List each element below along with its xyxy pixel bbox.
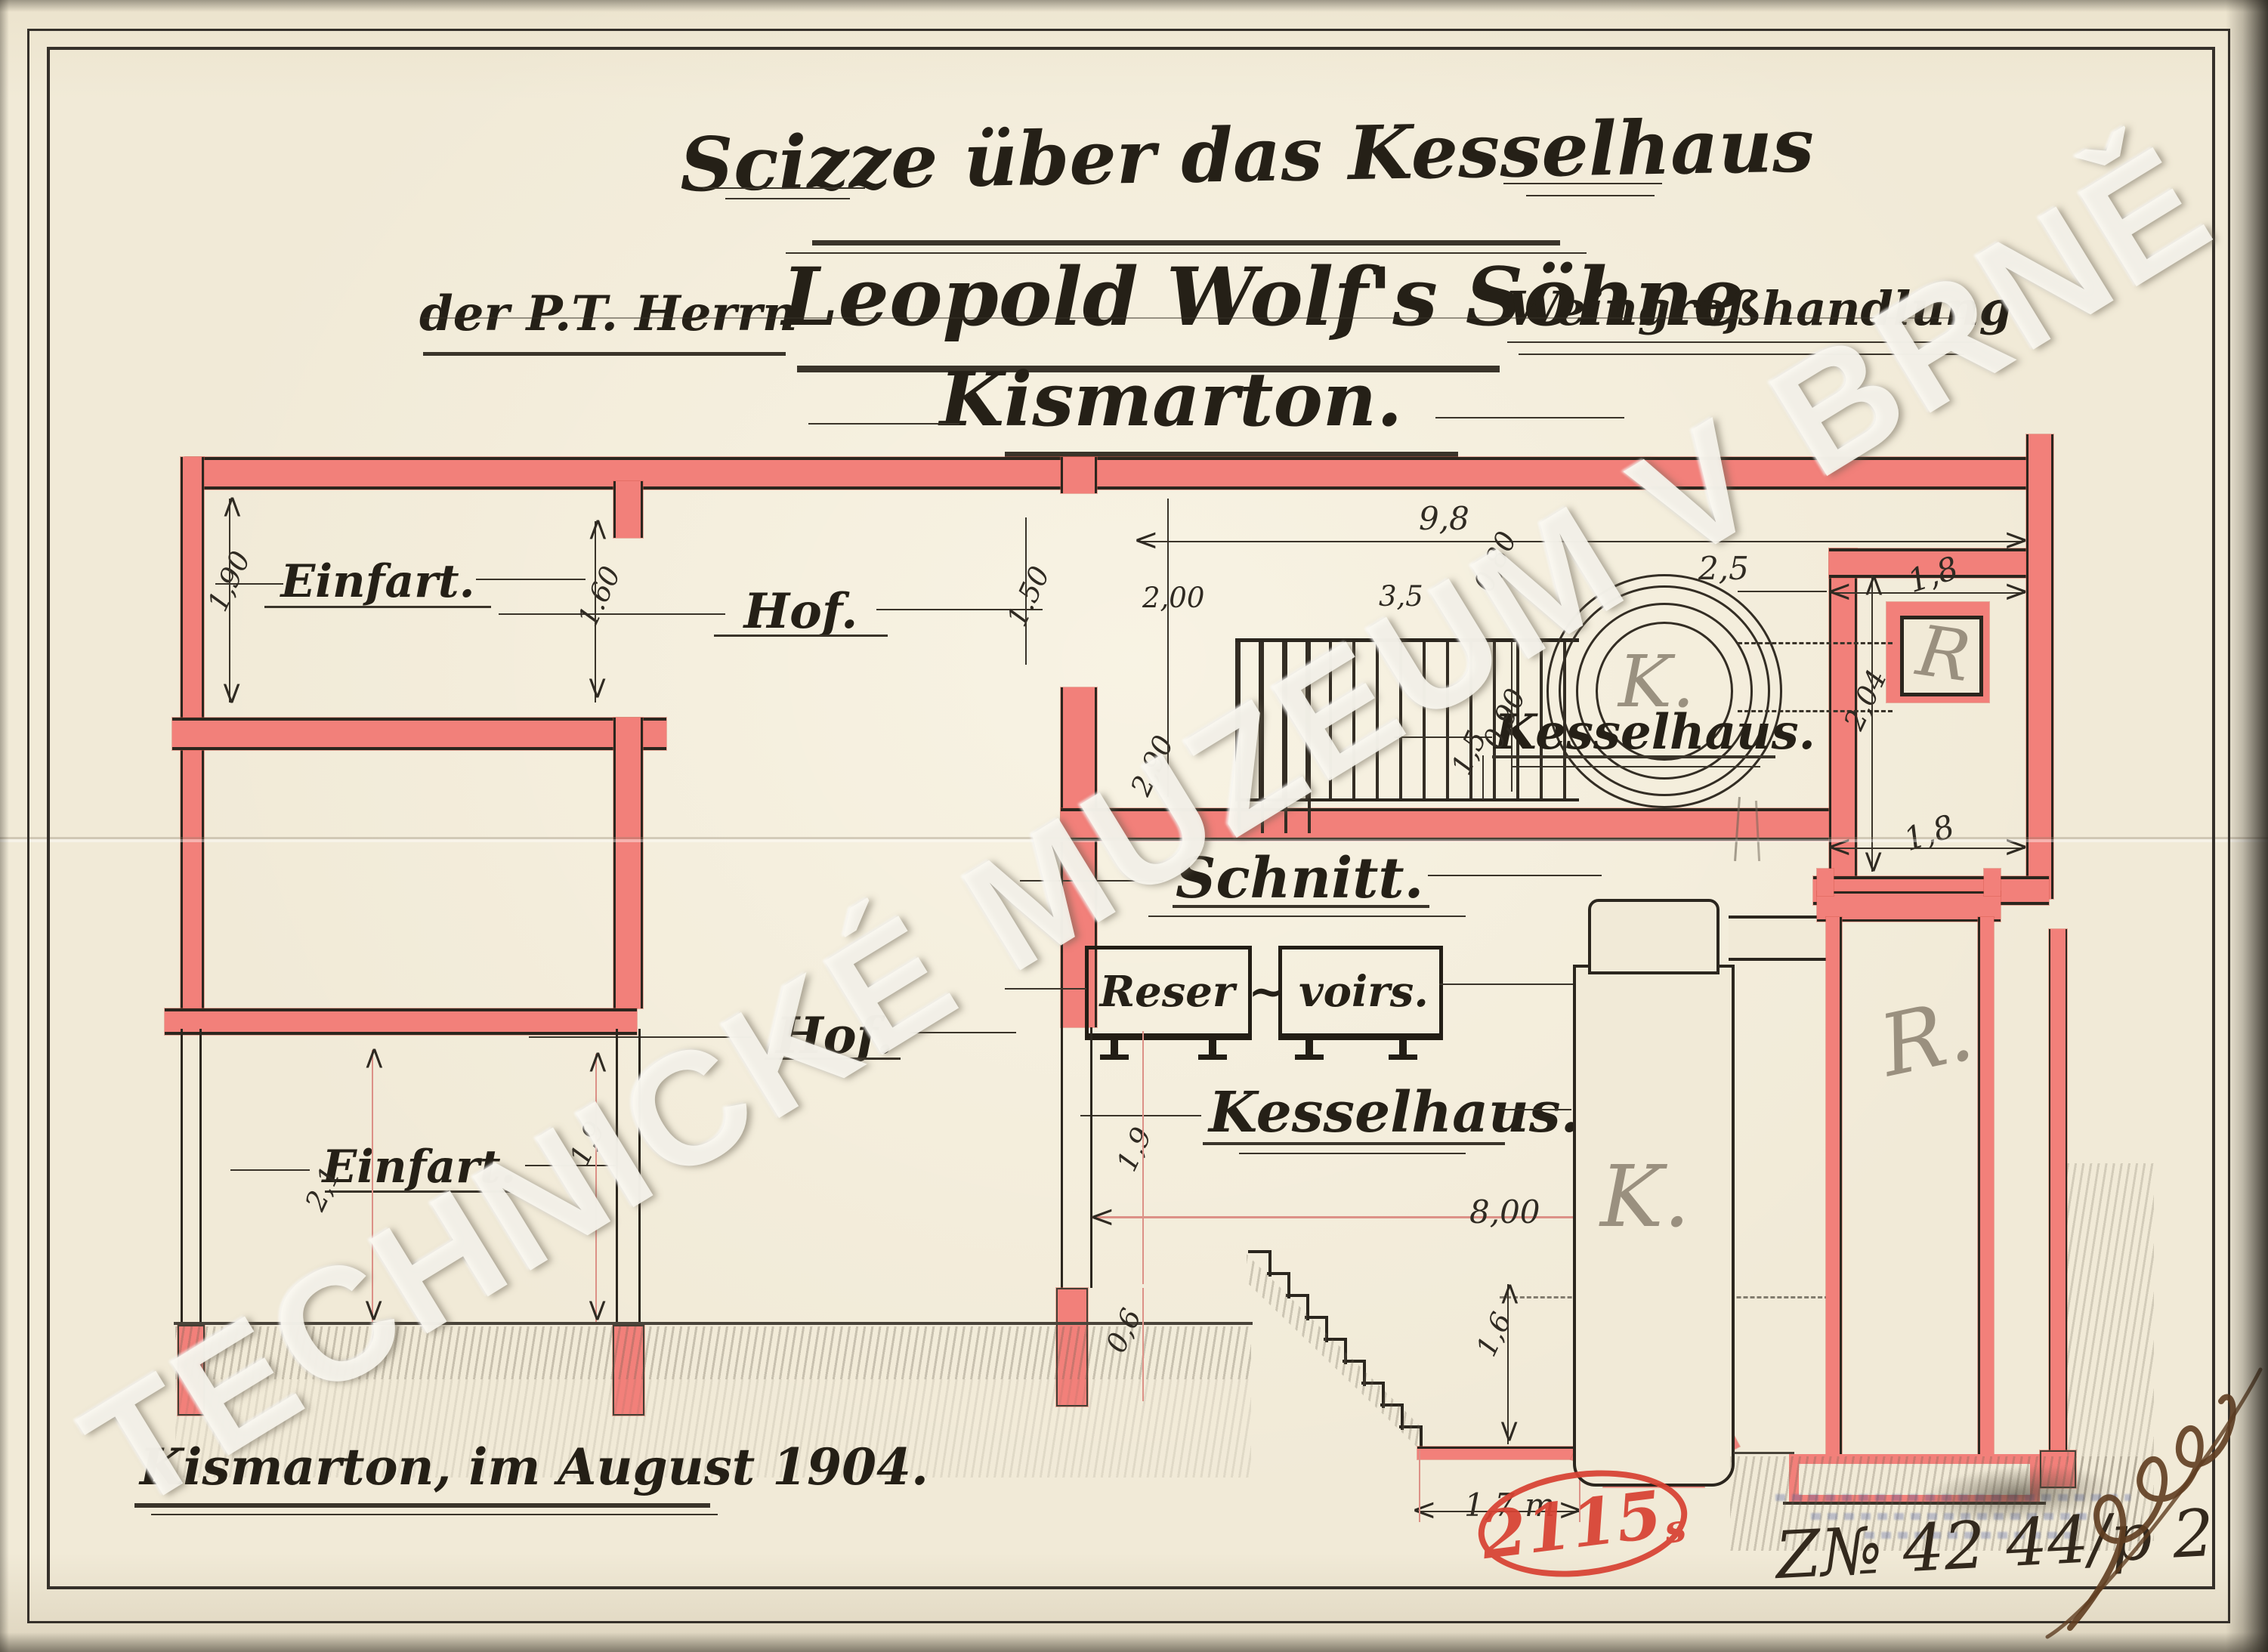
scan-edge-top [0, 0, 2268, 12]
drawing-sheet: Scizze über das Kesselhaus der P.T. Herr… [0, 0, 2268, 1652]
archive-stamp-suffix: s [1662, 1505, 1689, 1552]
signature [2040, 1356, 2268, 1650]
scan-edge-bottom [0, 1632, 2268, 1652]
inner-border-frame [47, 47, 2215, 1589]
scan-edge-left [0, 0, 9, 1652]
